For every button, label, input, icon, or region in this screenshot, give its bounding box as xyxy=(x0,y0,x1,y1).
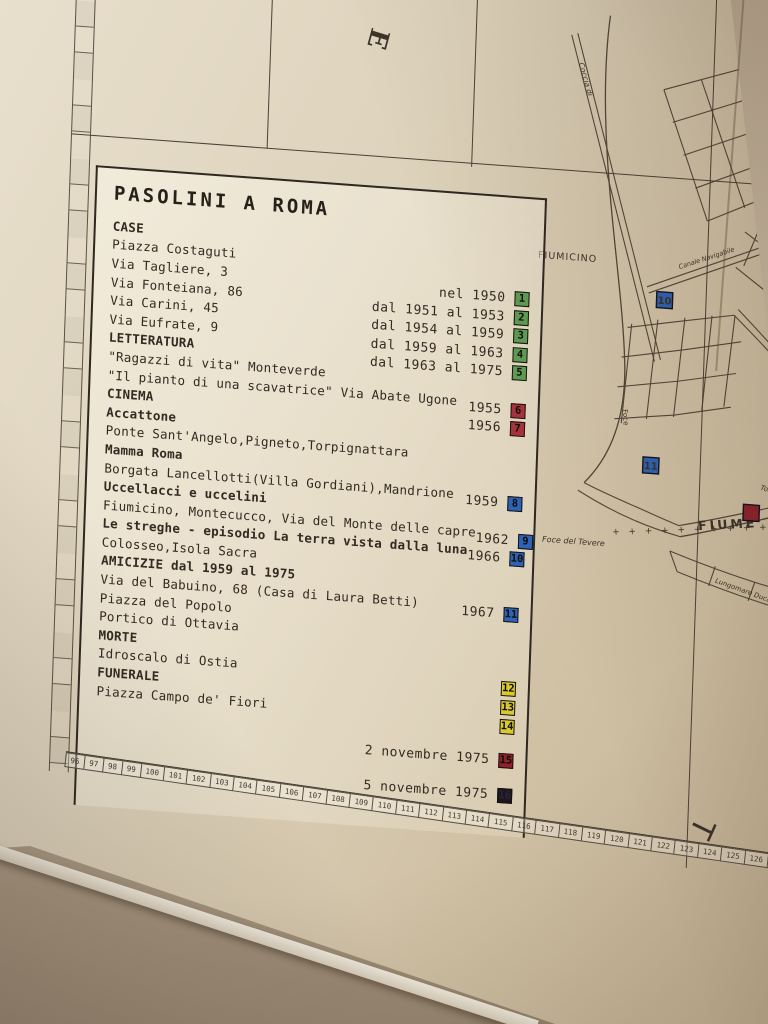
scale-tick xyxy=(60,447,79,475)
scale-number: 113 xyxy=(442,807,467,825)
legend-entry-right: 13 xyxy=(500,700,515,716)
scale-number: 103 xyxy=(210,773,235,791)
map-large-letter-t: T xyxy=(682,811,722,844)
scale-tick xyxy=(59,474,78,501)
scale-number: 122 xyxy=(651,837,676,855)
scale-tick xyxy=(54,632,73,659)
scale-tick xyxy=(56,553,75,580)
map-label-lungomare: Lungomare Duca xyxy=(714,577,768,605)
scale-tick xyxy=(57,526,76,554)
scale-number: 100 xyxy=(140,763,165,781)
scale-number: 116 xyxy=(512,817,537,835)
scale-number: 108 xyxy=(326,790,351,808)
legend-marker-3: 3 xyxy=(513,328,528,344)
map-board: E xyxy=(0,0,768,1024)
legend-entry-text xyxy=(95,725,365,745)
scale-tick xyxy=(61,421,80,448)
scale-tick xyxy=(66,289,85,317)
map-marker-10: 10 xyxy=(656,292,673,309)
scale-number: 104 xyxy=(233,776,258,794)
scale-number: 120 xyxy=(605,830,630,848)
scale-number: 115 xyxy=(489,813,514,831)
map-large-letter-e: E xyxy=(360,25,394,53)
map-marker-red xyxy=(743,504,760,521)
street-map: FIUMICINO Foce del Tevere FIUME + + + + … xyxy=(509,20,768,881)
scale-tick xyxy=(51,711,70,738)
scale-tick xyxy=(70,158,89,185)
scale-tick xyxy=(73,79,92,106)
map-markers: 1011 xyxy=(641,291,767,522)
legend-marker-4: 4 xyxy=(512,347,527,363)
legend-rows: CASEPiazza CostagutiVia Tagliere, 3nel 1… xyxy=(94,217,531,800)
legend-marker-16: 16 xyxy=(497,788,512,804)
scale-number: 119 xyxy=(582,827,607,845)
svg-text:10: 10 xyxy=(657,296,671,308)
legend-entry-date: 1959 xyxy=(465,492,499,509)
scale-number: 112 xyxy=(419,803,444,821)
legend-entry-right: 14 xyxy=(499,719,514,735)
scale-tick xyxy=(64,342,83,369)
grid-line-vertical xyxy=(267,0,275,149)
legend-marker-9: 9 xyxy=(518,534,533,550)
legend-entry-date: 1956 xyxy=(467,418,501,435)
map-label-torre-di: Torre di xyxy=(759,484,768,500)
legend-marker-1: 1 xyxy=(514,291,529,307)
scale-tick xyxy=(58,500,77,527)
scale-number: 124 xyxy=(698,843,723,861)
scale-number: 123 xyxy=(675,840,700,858)
legend-entry-date: 1955 xyxy=(468,400,502,417)
scale-number: 125 xyxy=(721,847,746,865)
legend-marker-6: 6 xyxy=(510,403,525,419)
scale-number: 109 xyxy=(349,793,374,811)
scale-tick xyxy=(65,316,84,343)
legend-box: PASOLINI A ROMA CASEPiazza CostagutiVia … xyxy=(74,165,547,838)
scale-number: 101 xyxy=(164,766,189,784)
scale-tick xyxy=(63,368,82,396)
scale-tick xyxy=(56,579,75,606)
legend-marker-11: 11 xyxy=(503,607,518,623)
scale-tick xyxy=(72,105,91,132)
scale-number: 107 xyxy=(303,786,328,804)
grid-line-vertical xyxy=(471,0,480,167)
scale-tick xyxy=(71,131,90,159)
svg-text:11: 11 xyxy=(644,461,658,473)
legend-entry-right: 2 novembre 197515 xyxy=(364,743,513,769)
legend-marker-5: 5 xyxy=(512,365,527,381)
board-content: E xyxy=(0,0,768,1024)
scale-number: 117 xyxy=(535,820,560,838)
legend-entry-date: 1962 xyxy=(475,530,509,547)
scale-number: 114 xyxy=(466,810,491,828)
map-label-coccia: Coccia di xyxy=(577,62,595,98)
scale-tick xyxy=(75,26,94,53)
scale-number: 98 xyxy=(103,758,123,776)
legend-marker-8: 8 xyxy=(507,496,522,512)
scale-tick xyxy=(55,605,74,633)
scale-number: 121 xyxy=(628,833,653,851)
scale-tick xyxy=(67,263,86,290)
photo-of-map-board: E xyxy=(0,0,768,1024)
scale-number: 102 xyxy=(187,770,212,788)
scale-number: 99 xyxy=(122,760,142,778)
legend-marker-2: 2 xyxy=(514,310,529,326)
legend-entry-right: 12 xyxy=(501,681,516,697)
scale-tick xyxy=(52,684,71,712)
scale-tick xyxy=(67,237,86,264)
legend-marker-7: 7 xyxy=(510,421,525,437)
map-label-fiumicino: FIUMICINO xyxy=(538,250,597,265)
map-marker-11: 11 xyxy=(643,457,660,474)
legend-entry-date: 1966 xyxy=(467,548,501,565)
scale-number: 118 xyxy=(558,823,583,841)
scale-number: 106 xyxy=(280,783,305,801)
scale-number: 126 xyxy=(744,850,768,868)
scale-tick xyxy=(69,184,88,211)
map-label-canale-navigabile: Canale Navigabile xyxy=(678,245,736,271)
legend-entry-date: 1967 xyxy=(461,604,495,621)
map-label-foce-del-tevere: Foce del Tevere xyxy=(542,535,605,549)
legend-marker-12: 12 xyxy=(501,681,516,697)
scale-tick xyxy=(53,658,72,685)
scale-tick xyxy=(74,52,93,80)
scale-number: 96 xyxy=(64,752,85,770)
scale-number: 105 xyxy=(256,780,281,798)
legend-marker-10: 10 xyxy=(509,552,524,568)
scale-tick xyxy=(68,210,87,238)
scale-tick xyxy=(76,0,95,27)
scale-tick xyxy=(62,395,81,422)
legend-marker-15: 15 xyxy=(498,753,513,769)
scale-number: 111 xyxy=(396,800,421,818)
legend-marker-14: 14 xyxy=(499,719,514,735)
legend-entry-date: 2 novembre 1975 xyxy=(364,743,489,767)
scale-number: 97 xyxy=(84,755,104,773)
scale-number: 110 xyxy=(373,796,398,814)
legend-marker-13: 13 xyxy=(500,700,515,716)
map-label-foce-vertical: Foce xyxy=(621,409,630,425)
